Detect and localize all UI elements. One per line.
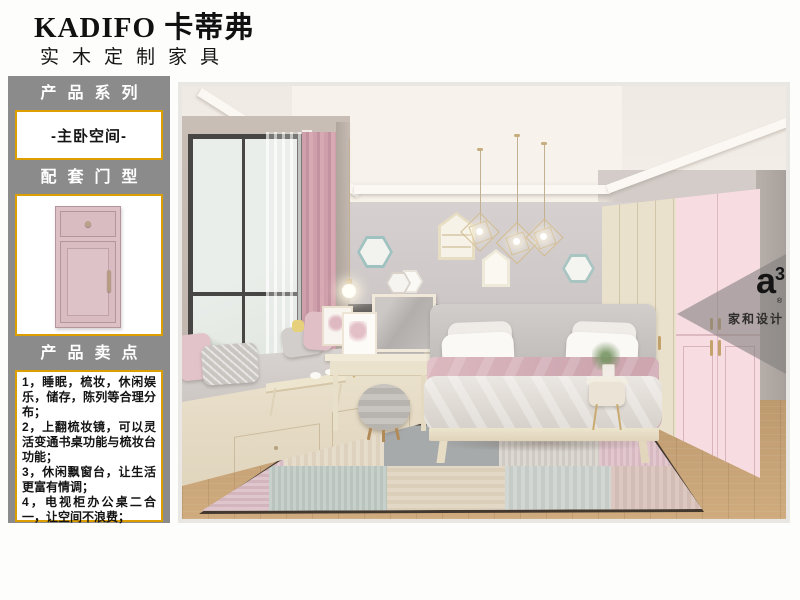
bulb-pendant-light <box>342 284 356 298</box>
cabinet-door-graphic <box>55 206 121 328</box>
pendant-bulb <box>513 238 520 245</box>
door-section-title: 配套门型 <box>8 168 170 188</box>
sidebar: 产品系列 -主卧空间- 配套门型 产品卖点 1，睡眠，梳妆，休闲娱乐，储存，陈列… <box>8 76 170 523</box>
drawer-knob <box>85 221 91 227</box>
pendant-bulb <box>476 228 483 235</box>
watermark-logo: a3 <box>706 262 784 306</box>
wardrobe-handle <box>718 340 721 356</box>
vanity-mirror <box>372 294 436 352</box>
pendant-canopy <box>477 148 483 151</box>
dressing-table-drawer <box>330 361 428 376</box>
door-image-box <box>15 194 163 336</box>
seat-pillow-gray <box>201 342 260 386</box>
brand-subtitle: 实木定制家具 <box>40 42 232 69</box>
selling-section-title: 产品卖点 <box>8 344 170 364</box>
pendant-canopy <box>541 142 547 145</box>
bulb-pendant-cord <box>349 138 350 286</box>
teacup <box>310 372 321 379</box>
wardrobe-handle <box>710 340 713 356</box>
series-section-title: 产品系列 <box>8 84 170 104</box>
white-duvet <box>424 376 662 432</box>
series-value-box: -主卧空间- <box>15 110 163 160</box>
selling-points-box: 1，睡眠，梳妆，休闲娱乐，储存，陈列等合理分布； 2，上翻梳妆镜，可以灵活变通书… <box>15 370 163 522</box>
selling-point-item: 2，上翻梳妆镜，可以灵活变通书桌功能与梳妆台功能； <box>22 420 156 465</box>
nightstand-body <box>589 382 625 406</box>
cove-molding-center <box>354 185 610 194</box>
pendant-cord <box>517 136 518 234</box>
door-panel <box>60 241 116 323</box>
pendant-canopy <box>514 134 520 137</box>
door-handle <box>107 270 111 292</box>
stool-pouf <box>358 384 410 430</box>
registered-mark: ® <box>777 298 782 305</box>
dressing-table-top <box>325 354 433 361</box>
seat-pillow-yellow <box>292 320 304 332</box>
watermark-name: 家和设计 <box>706 310 784 327</box>
watermark: a3 ® 家和设计 <box>706 262 784 327</box>
picture-frame-2 <box>342 312 377 356</box>
bedroom-photo: a3 ® 家和设计 <box>178 82 790 523</box>
selling-point-item: 1，睡眠，梳妆，休闲娱乐，储存，陈列等合理分布； <box>22 375 156 420</box>
door-drawer <box>60 211 116 237</box>
selling-point-item: 4，电视柜办公桌二合一，让空间不浪费； <box>22 495 156 525</box>
bed-frame-rail <box>429 428 659 441</box>
dressing-table-leg <box>333 375 338 431</box>
wardrobe-handle <box>658 336 661 350</box>
series-value-label: -主卧空间- <box>51 125 127 146</box>
pendant-bulb <box>540 233 547 240</box>
selling-point-item: 3，休闲飘窗台，让生活更富有情调； <box>22 465 156 495</box>
door-inner-panel <box>67 248 109 316</box>
stool-leg <box>382 430 385 442</box>
brand-logo: KADIFO 卡蒂弗 <box>34 4 254 46</box>
